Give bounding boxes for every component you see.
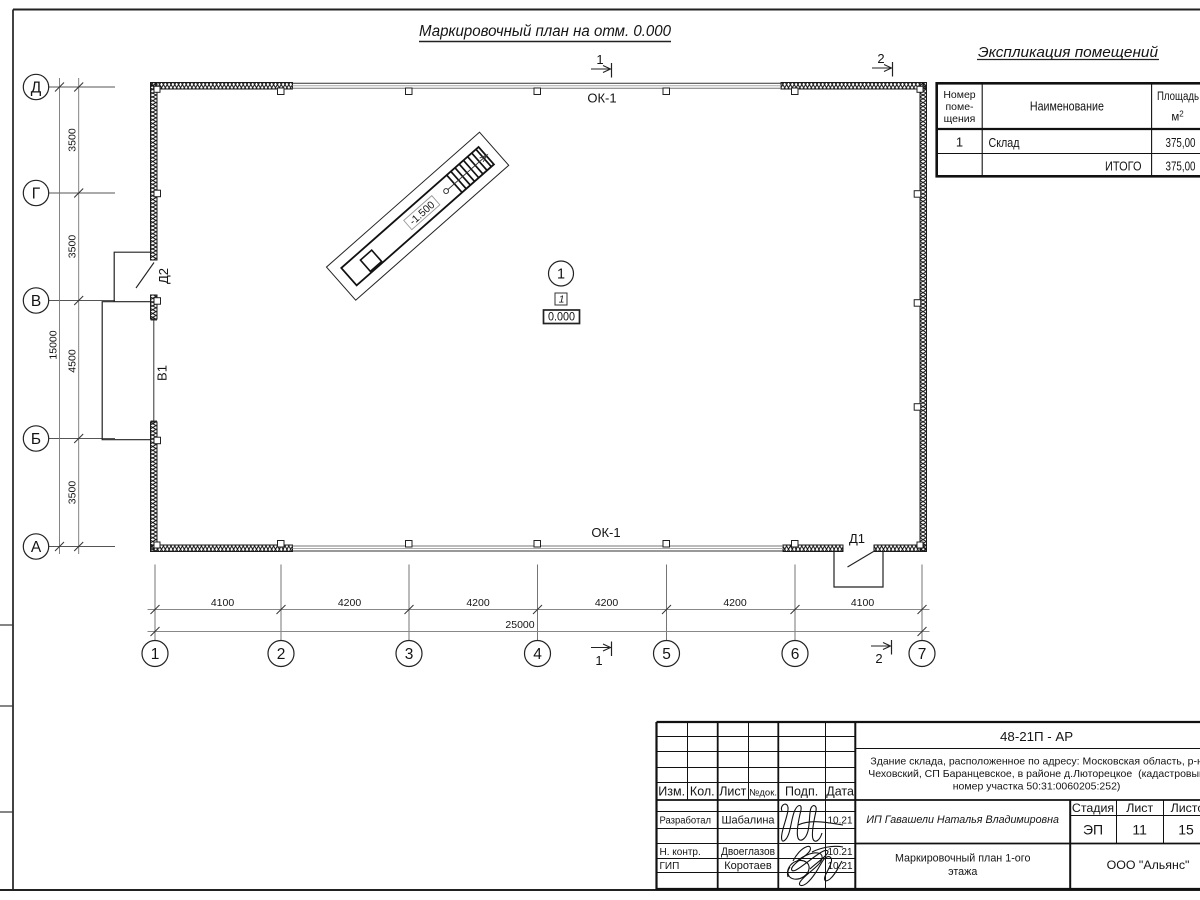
- svg-text:м2: м2: [1171, 110, 1184, 124]
- svg-text:48-21П - АР: 48-21П - АР: [1000, 729, 1073, 744]
- svg-text:3500: 3500: [67, 235, 79, 259]
- svg-text:Д2: Д2: [156, 268, 171, 284]
- svg-text:3500: 3500: [67, 481, 79, 505]
- svg-text:4200: 4200: [723, 597, 747, 609]
- svg-text:4100: 4100: [851, 597, 875, 609]
- svg-text:25000: 25000: [505, 619, 534, 631]
- svg-text:поме-: поме-: [945, 101, 974, 113]
- svg-text:Н. контр.: Н. контр.: [660, 847, 701, 858]
- svg-text:Лист: Лист: [1126, 801, 1153, 815]
- svg-text:А: А: [31, 539, 42, 556]
- svg-text:этажа: этажа: [948, 866, 977, 878]
- svg-text:1: 1: [596, 52, 603, 67]
- svg-text:0.000: 0.000: [548, 310, 575, 324]
- svg-text:Б: Б: [31, 431, 41, 448]
- svg-text:Д1: Д1: [849, 531, 865, 546]
- svg-text:Маркировочный план 1-ого: Маркировочный план 1-ого: [895, 853, 1031, 865]
- svg-text:3: 3: [405, 646, 414, 663]
- svg-text:2: 2: [875, 651, 882, 666]
- svg-text:ИП Гавашели Наталья Владимиров: ИП Гавашели Наталья Владимировна: [866, 814, 1059, 826]
- svg-text:Листов: Листов: [1171, 801, 1200, 815]
- svg-text:Здание склада, расположенное п: Здание склада, расположенное по адресу: …: [870, 756, 1200, 768]
- svg-text:Дата: Дата: [826, 785, 854, 799]
- svg-text:4100: 4100: [211, 597, 235, 609]
- svg-text:№док.: №док.: [749, 788, 777, 799]
- svg-text:4: 4: [533, 646, 542, 663]
- svg-text:3500: 3500: [67, 128, 79, 152]
- svg-text:Чеховский, СП Баранцевское, в: Чеховский, СП Баранцевское, в районе д.Л…: [868, 768, 1200, 780]
- svg-text:Экспликация помещений: Экспликация помещений: [978, 44, 1159, 61]
- svg-text:1: 1: [956, 135, 963, 150]
- svg-text:Двоеглазов: Двоеглазов: [721, 846, 775, 858]
- svg-text:ОК-1: ОК-1: [587, 91, 616, 106]
- svg-text:4200: 4200: [338, 597, 362, 609]
- svg-text:Д: Д: [31, 80, 42, 97]
- svg-text:Маркировочный план на отм. 0.0: Маркировочный план на отм. 0.000: [419, 23, 671, 40]
- svg-text:4500: 4500: [67, 349, 79, 373]
- svg-text:Площадь: Площадь: [1157, 91, 1199, 103]
- svg-text:375,00: 375,00: [1166, 159, 1196, 174]
- svg-text:ИТОГО: ИТОГО: [1105, 159, 1142, 174]
- svg-text:ОК-1: ОК-1: [591, 525, 620, 540]
- svg-text:щения: щения: [944, 113, 976, 125]
- svg-text:Номер: Номер: [943, 89, 975, 101]
- svg-text:6: 6: [791, 646, 800, 663]
- svg-text:11: 11: [1132, 822, 1147, 838]
- svg-text:1: 1: [595, 653, 602, 668]
- svg-text:Шабалина: Шабалина: [722, 815, 776, 827]
- svg-text:Коротаев: Коротаев: [724, 860, 772, 872]
- svg-text:Наименование: Наименование: [1030, 100, 1104, 114]
- svg-text:7: 7: [918, 646, 927, 663]
- svg-text:1: 1: [557, 267, 565, 283]
- svg-text:4200: 4200: [466, 597, 490, 609]
- svg-text:15: 15: [1178, 822, 1194, 838]
- svg-text:2: 2: [277, 646, 286, 663]
- svg-text:Г: Г: [32, 186, 41, 203]
- svg-text:Разработал: Разработал: [660, 815, 712, 827]
- svg-text:375,00: 375,00: [1166, 135, 1196, 150]
- svg-text:Изм.: Изм.: [658, 785, 685, 799]
- svg-text:В: В: [31, 293, 41, 310]
- svg-text:10.21: 10.21: [827, 847, 852, 858]
- svg-text:В1: В1: [155, 365, 170, 381]
- svg-text:1: 1: [151, 646, 160, 663]
- svg-text:15000: 15000: [48, 330, 60, 359]
- svg-text:Склад: Склад: [989, 135, 1020, 150]
- svg-text:Подп.: Подп.: [785, 785, 818, 799]
- svg-text:5: 5: [662, 646, 671, 663]
- svg-text:ООО "Альянс": ООО "Альянс": [1107, 858, 1190, 872]
- svg-text:ЭП: ЭП: [1083, 822, 1103, 838]
- svg-text:2: 2: [877, 51, 884, 66]
- svg-text:1: 1: [559, 294, 565, 306]
- svg-text:4200: 4200: [595, 597, 619, 609]
- svg-text:Стадия: Стадия: [1072, 801, 1114, 815]
- svg-text:Лист: Лист: [719, 785, 746, 799]
- svg-text:ГИП: ГИП: [660, 861, 680, 872]
- svg-text:Кол.: Кол.: [690, 785, 715, 799]
- svg-text:номер участка 50:31:0060205:25: номер участка 50:31:0060205:252): [953, 781, 1121, 793]
